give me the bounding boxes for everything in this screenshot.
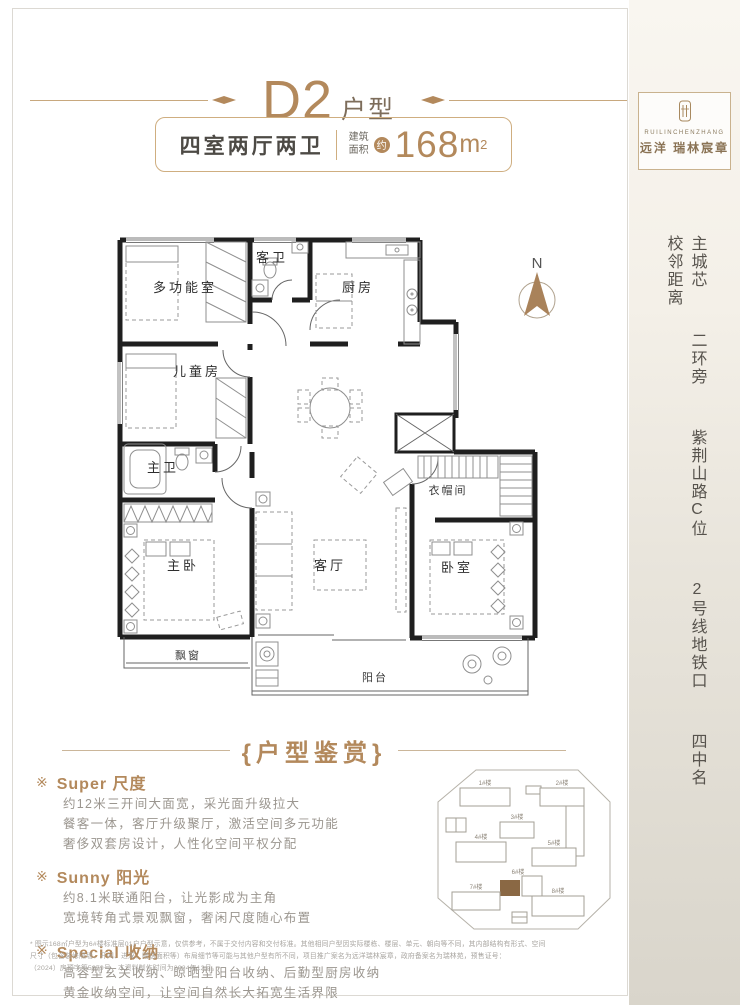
slogan-phrase: 主城芯 — [689, 235, 706, 289]
building-label-7: 7#楼 — [470, 883, 483, 891]
balcony-outline — [252, 637, 528, 695]
diamond-ornament-icon — [421, 96, 445, 104]
room-label-multi-function: 多功能室 — [153, 280, 217, 295]
brand-logo-box: RUILINCHENZHANG 远洋 瑞林宸章 — [638, 92, 731, 170]
diamond-ornament-icon — [212, 96, 236, 104]
area-superscript: 2 — [480, 137, 487, 152]
reference-mark-icon: ※ — [36, 774, 48, 791]
building-label-6: 6#楼 — [512, 868, 525, 876]
compass-icon: N — [519, 255, 555, 318]
area-label: 建筑 面积 — [349, 132, 369, 157]
ornament-rule-right — [449, 100, 627, 101]
room-layout-label: 四室两厅两卫 — [180, 130, 324, 160]
building-label-8: 8#楼 — [552, 887, 565, 895]
brand-seal-icon — [677, 100, 693, 122]
disclaimer-line: * 图示168㎡户型为6#楼标准层01户户型示意，仅供参考，不属于交付内容和交付… — [30, 939, 618, 951]
heading-rule-right — [398, 750, 566, 751]
selling-point-title: Super 尺度 — [57, 770, 147, 794]
spec-box: 四室两厅两卫 建筑 面积 约 168 m 2 — [155, 117, 512, 172]
selling-point-title: Sunny 阳光 — [57, 864, 150, 888]
room-label-balcony: 阳台 — [362, 670, 388, 684]
room-label-kitchen: 厨房 — [342, 280, 374, 295]
disclaimer-line: 尺寸（包含装修隔墙、开间、进深、赠送面积等）布局细节等可能与其他户型有所不同，项… — [30, 951, 618, 963]
appreciation-title: {户型鉴赏} — [242, 733, 387, 768]
brand-latin-name: RUILINCHENZHANG — [639, 130, 730, 136]
brand-chinese-name: 远洋 瑞林宸章 — [639, 139, 730, 156]
building-label-4: 4#楼 — [475, 833, 488, 841]
building-label-5: 5#楼 — [548, 839, 561, 847]
master-closet — [124, 504, 212, 522]
living-room-furniture — [256, 457, 412, 628]
room-label-master-bath: 主卫 — [147, 460, 179, 475]
selling-point-line: 约8.1米联通阳台，让光影成为主角 — [63, 889, 428, 908]
room-label-guest-bath: 客卫 — [256, 250, 288, 265]
selling-point-super: ※ Super 尺度 约12米三开间大面宽，采光面升级拉大 餐客一体，客厅升级聚… — [36, 770, 428, 853]
room-label-bay-window: 飘窗 — [175, 648, 201, 662]
slogan-phrase: 2号线地铁口 — [689, 581, 706, 690]
room-label-master-bedroom: 主卧 — [167, 558, 199, 573]
area-value: 168 — [395, 124, 460, 166]
reference-mark-icon: ※ — [36, 868, 48, 885]
room-label-living: 客厅 — [314, 558, 346, 573]
disclaimer-line: （2024）房预字第5879号，本资料制作时间为2024年12月。 — [30, 963, 618, 975]
selling-point-line: 约12米三开间大面宽，采光面升级拉大 — [63, 795, 428, 814]
room-label-bedroom: 卧室 — [441, 560, 473, 575]
poster-page: RUILINCHENZHANG 远洋 瑞林宸章 主城芯 二环旁 紫荆山路C位 2… — [0, 0, 740, 1005]
bedroom-furniture — [430, 522, 523, 629]
slogan-phrase: 二环旁 — [689, 332, 706, 386]
selling-point-line: 黄金收纳空间，让空间自然长大拓宽生活界限 — [63, 984, 428, 1003]
disclaimer-text: * 图示168㎡户型为6#楼标准层01户户型示意，仅供参考，不属于交付内容和交付… — [30, 939, 618, 976]
heading-rule-left — [62, 750, 230, 751]
compass-north-label: N — [532, 255, 543, 272]
ornament-rule-left — [30, 100, 208, 101]
sidebar-slogan: 主城芯 二环旁 紫荆山路C位 2号线地铁口 四中名校邻距离 — [629, 235, 740, 795]
approx-badge: 约 — [374, 137, 390, 153]
building-label-1: 1#楼 — [479, 779, 492, 787]
selling-point-line: 宽境转角式景观飘窗，奢闲尺度随心布置 — [63, 909, 428, 928]
slogan-phrase: 紫荆山路C位 — [689, 429, 706, 538]
master-bedroom-furniture — [124, 524, 243, 633]
selling-point-line: 奢侈双套房设计，人性化空间平权分配 — [63, 835, 428, 854]
floorplan-windows — [117, 237, 522, 642]
site-buildings — [446, 786, 584, 923]
floorplan-walls — [120, 240, 535, 638]
building-label-3: 3#楼 — [511, 813, 524, 821]
site-plan-map: 1#楼 2#楼 3#楼 4#楼 5#楼 6#楼 7#楼 8#楼 — [428, 762, 620, 937]
room-label-cloakroom: 衣帽间 — [429, 483, 468, 497]
highlighted-building-6 — [500, 880, 520, 896]
room-label-kids-room: 儿童房 — [173, 364, 221, 379]
selling-point-sunny: ※ Sunny 阳光 约8.1米联通阳台，让光影成为主角 宽境转角式景观飘窗，奢… — [36, 864, 428, 928]
room-label-dining: 餐厅 — [314, 401, 346, 416]
building-label-2: 2#楼 — [556, 779, 569, 787]
area-unit: m — [459, 130, 480, 159]
floorplan-diagram: 多功能室 客卫 厨房 儿童房 餐厅 主卫 主卧 飘窗 客厅 阳台 卧室 衣帽间 … — [100, 222, 580, 714]
selling-point-line: 餐客一体，客厅升级聚厅，激活空间多元功能 — [63, 815, 428, 834]
spec-divider — [336, 130, 337, 160]
